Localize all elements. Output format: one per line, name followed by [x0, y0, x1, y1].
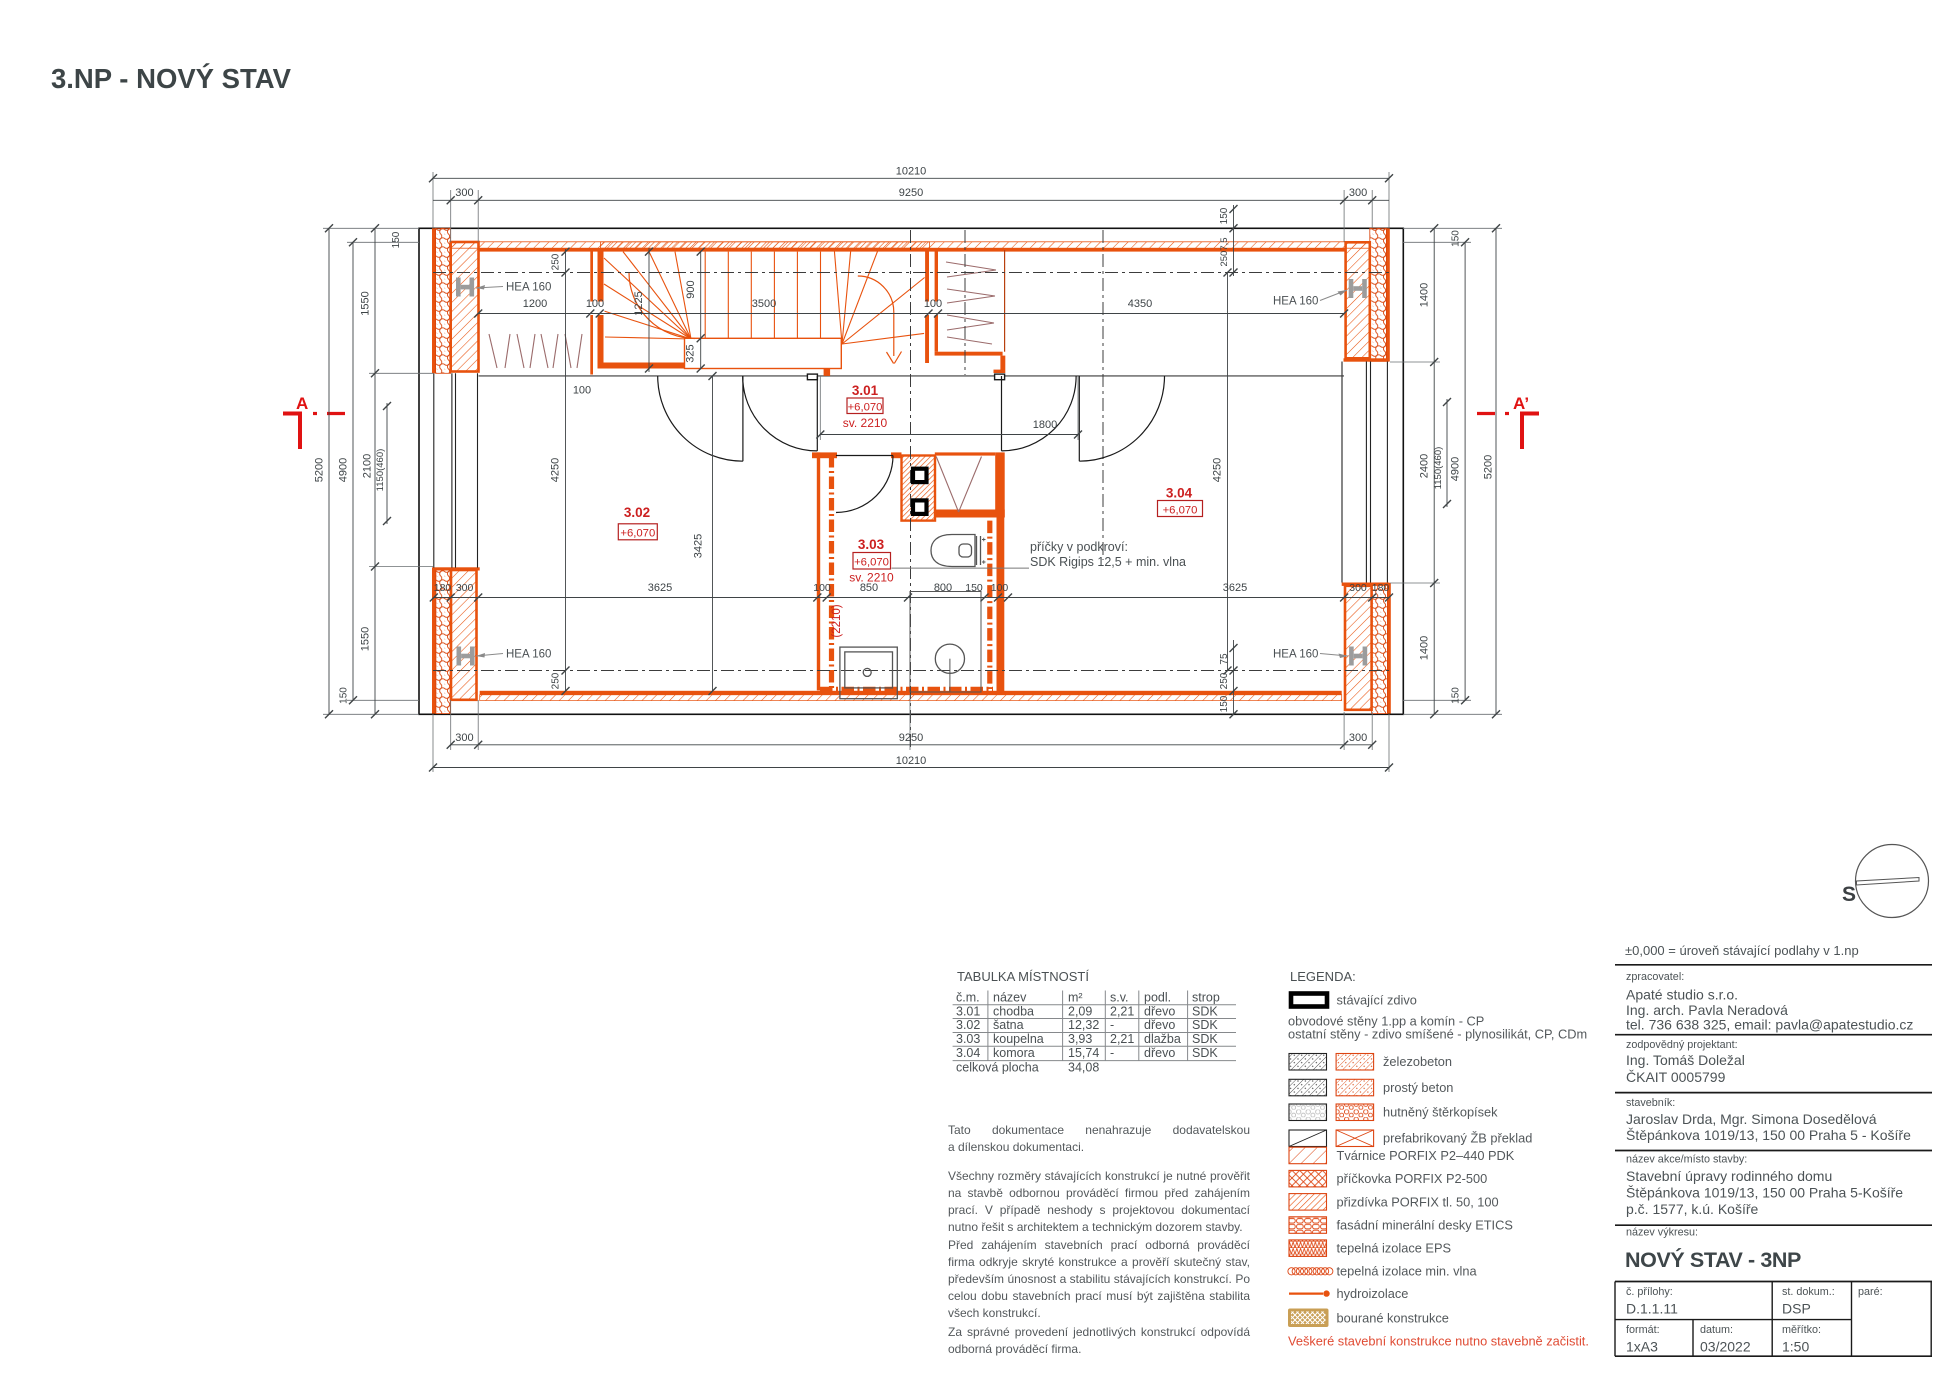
svg-text:st. dokum.:: st. dokum.:: [1782, 1286, 1835, 1298]
svg-text:bourané konstrukce: bourané konstrukce: [1337, 1311, 1449, 1326]
svg-text:chodba: chodba: [993, 1004, 1034, 1018]
svg-text:150: 150: [1219, 207, 1230, 224]
svg-text:850: 850: [860, 582, 878, 594]
svg-text:100: 100: [573, 385, 591, 397]
svg-text:HEA 160: HEA 160: [1273, 296, 1318, 308]
svg-text:1150(460): 1150(460): [1433, 447, 1444, 490]
svg-text:SDK Rigips 12,5 + min. vlna: SDK Rigips 12,5 + min. vlna: [1030, 555, 1186, 569]
svg-text:příčkovka PORFIX P2-500: příčkovka PORFIX P2-500: [1337, 1171, 1488, 1186]
svg-text:100: 100: [586, 298, 604, 310]
svg-text:3.01: 3.01: [956, 1004, 980, 1018]
svg-text:zodpovědný projektant:: zodpovědný projektant:: [1626, 1039, 1738, 1051]
svg-text:250: 250: [551, 672, 562, 689]
svg-text:4900: 4900: [1450, 457, 1462, 481]
svg-text:+6,070: +6,070: [1163, 505, 1198, 517]
svg-text:2507,5: 2507,5: [1219, 237, 1230, 266]
svg-text:Štěpánkova 1019/13, 150 00 Pra: Štěpánkova 1019/13, 150 00 Praha 5 - Koš…: [1626, 1127, 1911, 1143]
svg-text:Ing. Tomáš Doležal: Ing. Tomáš Doležal: [1626, 1052, 1745, 1068]
svg-text:DSP: DSP: [1782, 1301, 1811, 1317]
svg-text:3.01: 3.01: [852, 383, 879, 398]
svg-text:9250: 9250: [899, 187, 923, 199]
svg-text:±0,000 = úroveň stávající podl: ±0,000 = úroveň stávající podlahy v 1.np: [1625, 943, 1859, 958]
svg-text:dřevo: dřevo: [1144, 1046, 1175, 1060]
svg-text:příčky v podkroví:: příčky v podkroví:: [1030, 540, 1128, 554]
svg-text:300: 300: [455, 732, 473, 744]
svg-text:hydroizolace: hydroizolace: [1337, 1286, 1409, 1301]
svg-text:-: -: [1110, 1018, 1114, 1032]
svg-text:tepelná izolace min. vlna: tepelná izolace min. vlna: [1337, 1264, 1478, 1279]
svg-text:2100: 2100: [362, 454, 374, 478]
svg-text:HEA 160: HEA 160: [506, 282, 551, 294]
svg-text:34,08: 34,08: [1068, 1060, 1099, 1074]
svg-text:3,93: 3,93: [1068, 1032, 1092, 1046]
svg-text:150: 150: [1451, 687, 1462, 704]
svg-text:TABULKA MÍSTNOSTÍ: TABULKA MÍSTNOSTÍ: [957, 969, 1089, 984]
svg-text:stávající zdivo: stávající zdivo: [1337, 993, 1417, 1008]
svg-text:název: název: [993, 990, 1027, 1004]
svg-text:180: 180: [434, 582, 452, 594]
svg-text:15,74: 15,74: [1068, 1046, 1099, 1060]
svg-text:celková plocha: celková plocha: [956, 1060, 1039, 1074]
svg-text:3625: 3625: [1223, 582, 1247, 594]
svg-text:tepelná izolace EPS: tepelná izolace EPS: [1337, 1241, 1452, 1256]
svg-text:1200: 1200: [523, 298, 547, 310]
svg-text:100: 100: [924, 298, 942, 310]
svg-text:03/2022: 03/2022: [1700, 1339, 1751, 1355]
svg-text:3.03: 3.03: [956, 1032, 980, 1046]
svg-text:ČKAIT 0005799: ČKAIT 0005799: [1626, 1069, 1726, 1085]
svg-text:300: 300: [1349, 732, 1367, 744]
svg-text:150: 150: [1219, 695, 1230, 712]
svg-text:tel. 736 638 325, email: pavla: tel. 736 638 325, email: pavla@apatestud…: [1626, 1017, 1913, 1033]
svg-text:sv. 2210: sv. 2210: [843, 416, 888, 430]
svg-text:1400: 1400: [1419, 636, 1431, 660]
svg-text:dlažba: dlažba: [1144, 1032, 1181, 1046]
svg-text:formát:: formát:: [1626, 1324, 1660, 1336]
svg-text:4350: 4350: [1128, 298, 1152, 310]
svg-text:šatna: šatna: [993, 1018, 1024, 1032]
svg-text:č. přílohy:: č. přílohy:: [1626, 1286, 1673, 1298]
svg-text:Apaté studio s.r.o.: Apaté studio s.r.o.: [1626, 987, 1738, 1003]
svg-text:1:50: 1:50: [1782, 1339, 1809, 1355]
svg-text:prefabrikovaný ŽB překlad: prefabrikovaný ŽB překlad: [1383, 1131, 1532, 1146]
svg-text:300: 300: [456, 582, 474, 594]
svg-text:koupelna: koupelna: [993, 1032, 1044, 1046]
svg-text:300: 300: [1349, 582, 1367, 594]
svg-text:12,32: 12,32: [1068, 1018, 1099, 1032]
svg-text:zpracovatel:: zpracovatel:: [1626, 971, 1684, 983]
svg-text:1800: 1800: [1033, 419, 1057, 431]
svg-text:1550: 1550: [359, 291, 371, 315]
svg-text:1550: 1550: [359, 627, 371, 651]
svg-text:+6,070: +6,070: [620, 528, 655, 540]
svg-text:strop: strop: [1192, 990, 1220, 1004]
svg-text:(2210): (2210): [831, 604, 843, 637]
svg-text:přizdívka PORFIX tl. 50, 100: přizdívka PORFIX tl. 50, 100: [1337, 1194, 1499, 1209]
svg-text:SDK: SDK: [1192, 1032, 1218, 1046]
svg-text:75: 75: [1219, 653, 1230, 665]
svg-text:SDK: SDK: [1192, 1018, 1218, 1032]
svg-text:2,09: 2,09: [1068, 1004, 1092, 1018]
svg-text:10210: 10210: [896, 166, 927, 178]
svg-text:S: S: [1842, 883, 1856, 906]
svg-text:m²: m²: [1068, 990, 1083, 1004]
svg-text:fasádní minerální desky ETICS: fasádní minerální desky ETICS: [1337, 1218, 1513, 1233]
svg-text:2,21: 2,21: [1110, 1032, 1134, 1046]
svg-text:+6,070: +6,070: [848, 402, 883, 414]
svg-text:HEA 160: HEA 160: [506, 649, 551, 661]
svg-text:2,21: 2,21: [1110, 1004, 1134, 1018]
svg-text:10210: 10210: [896, 755, 927, 767]
svg-text:SDK: SDK: [1192, 1004, 1218, 1018]
svg-text:3625: 3625: [648, 582, 672, 594]
svg-text:NOVÝ STAV - 3NP: NOVÝ STAV - 3NP: [1625, 1247, 1801, 1272]
svg-text:Jaroslav Drda, Mgr. Simona Dos: Jaroslav Drda, Mgr. Simona Dosedělová: [1626, 1111, 1877, 1127]
svg-text:Tvárnice PORFIX P2–440 PDK: Tvárnice PORFIX P2–440 PDK: [1337, 1148, 1515, 1163]
svg-text:4250: 4250: [550, 458, 562, 482]
svg-text:A: A: [296, 394, 308, 413]
svg-text:D.1.1.11: D.1.1.11: [1626, 1301, 1678, 1317]
svg-text:stavebník:: stavebník:: [1626, 1097, 1675, 1109]
svg-text:150: 150: [391, 231, 402, 248]
svg-text:100: 100: [991, 582, 1009, 594]
svg-text:100: 100: [813, 582, 831, 594]
svg-text:SDK: SDK: [1192, 1046, 1218, 1060]
svg-text:4900: 4900: [338, 458, 350, 482]
svg-text:-: -: [1110, 1046, 1114, 1060]
svg-text:5200: 5200: [1483, 455, 1495, 479]
svg-text:800: 800: [934, 582, 952, 594]
svg-text:komora: komora: [993, 1046, 1035, 1060]
svg-text:3.02: 3.02: [956, 1018, 980, 1032]
svg-text:Štěpánkova 1019/13, 150 00 Pra: Štěpánkova 1019/13, 150 00 Praha 5-Košíř…: [1626, 1185, 1903, 1201]
svg-text:název výkresu:: název výkresu:: [1626, 1227, 1698, 1239]
svg-text:150: 150: [1451, 230, 1462, 247]
svg-text:A’: A’: [1513, 394, 1529, 413]
svg-text:180: 180: [1372, 582, 1390, 594]
svg-text:datum:: datum:: [1700, 1324, 1733, 1336]
svg-text:4250: 4250: [1212, 458, 1224, 482]
svg-text:měřítko:: měřítko:: [1782, 1324, 1821, 1336]
svg-text:Stavební úpravy rodinného domu: Stavební úpravy rodinného domu: [1626, 1168, 1832, 1184]
svg-text:3.04: 3.04: [1166, 486, 1193, 501]
svg-text:1225: 1225: [633, 291, 645, 315]
svg-text:250: 250: [551, 253, 562, 270]
svg-text:9250: 9250: [899, 732, 923, 744]
svg-text:250: 250: [1219, 672, 1230, 689]
svg-text:ostatní stěny - zdivo smíšené: ostatní stěny - zdivo smíšené - plynosil…: [1288, 1026, 1587, 1041]
svg-text:dřevo: dřevo: [1144, 1018, 1175, 1032]
svg-text:3.03: 3.03: [858, 537, 885, 552]
svg-text:325: 325: [685, 344, 697, 362]
svg-text:s.v.: s.v.: [1110, 990, 1129, 1004]
svg-text:hutněný štěrkopísek: hutněný štěrkopísek: [1383, 1105, 1498, 1120]
svg-text:3500: 3500: [752, 298, 776, 310]
svg-text:dřevo: dřevo: [1144, 1004, 1175, 1018]
svg-text:3425: 3425: [693, 534, 705, 558]
svg-text:HEA 160: HEA 160: [1273, 649, 1318, 661]
svg-text:p.č. 1577, k.ú. Košíře: p.č. 1577, k.ú. Košíře: [1626, 1201, 1759, 1217]
svg-text:1400: 1400: [1419, 283, 1431, 307]
svg-text:prostý beton: prostý beton: [1383, 1080, 1453, 1095]
svg-text:č.m.: č.m.: [956, 990, 980, 1004]
svg-text:5200: 5200: [314, 458, 326, 482]
svg-text:LEGENDA:: LEGENDA:: [1290, 969, 1356, 984]
svg-text:2400: 2400: [1419, 454, 1431, 478]
svg-text:paré:: paré:: [1858, 1286, 1883, 1298]
svg-text:Veškeré stavební konstrukce nu: Veškeré stavební konstrukce nutno staveb…: [1288, 1334, 1589, 1349]
svg-text:železobeton: železobeton: [1383, 1054, 1452, 1069]
svg-text:název akce/místo stavby:: název akce/místo stavby:: [1626, 1154, 1747, 1166]
svg-text:900: 900: [685, 280, 697, 298]
svg-text:300: 300: [455, 187, 473, 199]
svg-text:150: 150: [965, 582, 983, 594]
svg-text:+6,070: +6,070: [854, 557, 889, 569]
svg-text:podl.: podl.: [1144, 990, 1171, 1004]
svg-text:3.04: 3.04: [956, 1046, 980, 1060]
svg-text:150: 150: [339, 687, 350, 704]
svg-text:1xA3: 1xA3: [1626, 1339, 1658, 1355]
svg-text:300: 300: [1349, 187, 1367, 199]
svg-text:3.02: 3.02: [624, 505, 650, 520]
svg-text:1150(460): 1150(460): [375, 449, 386, 492]
